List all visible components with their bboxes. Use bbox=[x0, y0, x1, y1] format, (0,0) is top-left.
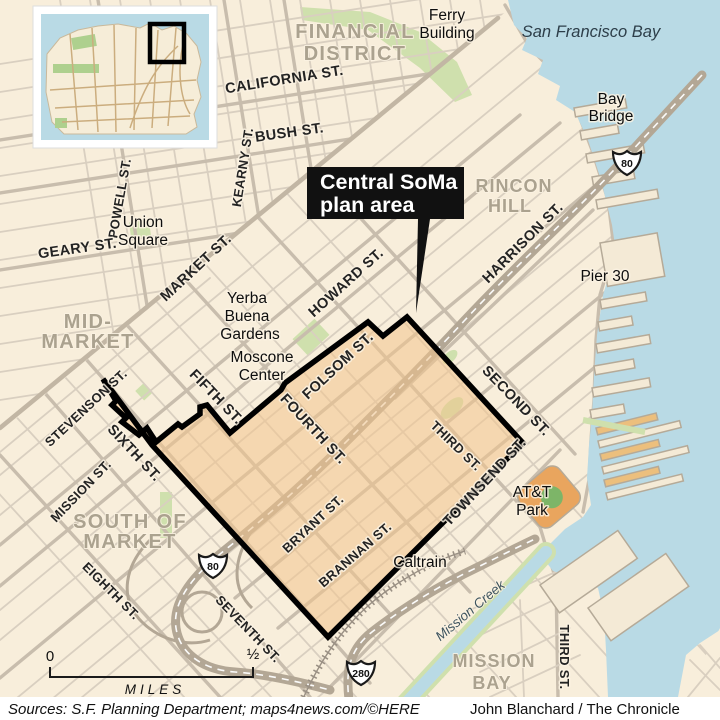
label-union-square-line2: Square bbox=[118, 232, 168, 249]
label-moscone-line2: Center bbox=[239, 367, 286, 384]
i280-shield-number: 280 bbox=[352, 668, 370, 680]
label-mid-market-line1: MID- bbox=[64, 311, 113, 333]
label-bay-bridge-line1: Bay bbox=[598, 91, 625, 108]
label-ferry-building-line1: Ferry bbox=[429, 7, 465, 24]
footer: Sources: S.F. Planning Department; maps4… bbox=[0, 697, 720, 720]
label-mid-market-line2: MARKET bbox=[41, 331, 134, 353]
label-union-square-line1: Union bbox=[123, 214, 164, 231]
label-att-park-line2: Park bbox=[516, 502, 548, 519]
label-mission-bay-line1: MISSION bbox=[452, 651, 535, 671]
callout-line2: plan area bbox=[320, 193, 415, 217]
label-rincon-hill-line1: RINCON bbox=[476, 176, 553, 196]
scale-end: ½ bbox=[247, 646, 260, 663]
label-third-st-south: THIRD ST. bbox=[557, 625, 572, 690]
label-caltrain: Caltrain bbox=[393, 554, 446, 571]
label-bay-bridge-line2: Bridge bbox=[589, 108, 634, 125]
label-yerba-buena-line1: Yerba bbox=[227, 290, 267, 307]
label-financial-district-line2: DISTRICT bbox=[304, 43, 407, 65]
map-canvas: FINANCIALDISTRICTFerryBuildingSan Franci… bbox=[0, 0, 720, 720]
label-pier-30: Pier 30 bbox=[580, 268, 629, 285]
label-rincon-hill-line2: HILL bbox=[488, 196, 532, 216]
i80-shield-bay-bridge-number: 80 bbox=[621, 158, 633, 170]
footer-sources: Sources: S.F. Planning Department; maps4… bbox=[8, 701, 421, 718]
central-soma-map-graphic: FINANCIALDISTRICTFerryBuildingSan Franci… bbox=[0, 0, 720, 720]
label-moscone-line1: Moscone bbox=[231, 349, 294, 366]
label-yerba-buena-line3: Gardens bbox=[220, 326, 280, 343]
scale-unit: MILES bbox=[125, 682, 186, 697]
label-yerba-buena-line2: Buena bbox=[225, 308, 270, 325]
label-south-of-market-line2: MARKET bbox=[83, 531, 176, 553]
callout-line1: Central SoMa bbox=[320, 170, 458, 194]
scale-start: 0 bbox=[46, 648, 54, 665]
inset-locator-map bbox=[33, 6, 217, 148]
inset-land bbox=[46, 23, 201, 134]
footer-credit: John Blanchard / The Chronicle bbox=[470, 701, 680, 718]
label-att-park-line1: AT&T bbox=[513, 484, 552, 501]
label-san-francisco-bay: San Francisco Bay bbox=[522, 23, 662, 41]
label-mission-bay-line2: BAY bbox=[472, 673, 511, 693]
label-south-of-market-line1: SOUTH OF bbox=[73, 511, 187, 533]
label-ferry-building-line2: Building bbox=[419, 25, 474, 42]
i80-shield-soma-number: 80 bbox=[207, 561, 219, 573]
label-financial-district-line1: FINANCIAL bbox=[295, 21, 414, 43]
